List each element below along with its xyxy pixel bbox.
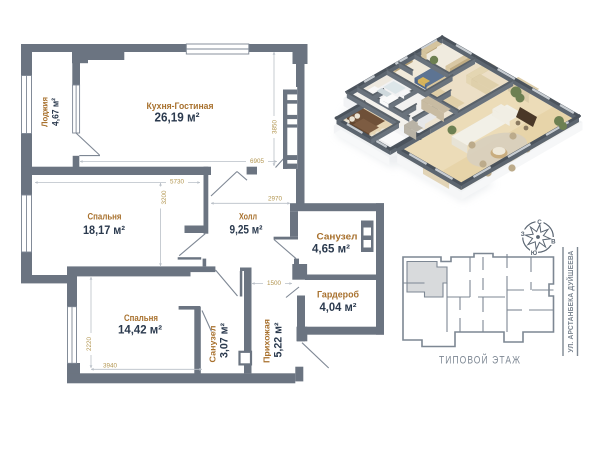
svg-text:5,22 м²: 5,22 м² — [272, 322, 284, 357]
svg-text:Ю: Ю — [531, 250, 538, 257]
svg-text:4,67 м²: 4,67 м² — [51, 98, 62, 126]
svg-text:З: З — [521, 231, 525, 238]
svg-text:14,42 м²: 14,42 м² — [118, 323, 162, 337]
svg-text:6905: 6905 — [250, 158, 265, 165]
svg-text:Санузел: Санузел — [208, 326, 218, 363]
svg-text:2220: 2220 — [86, 337, 93, 352]
svg-text:18,17 м²: 18,17 м² — [83, 223, 125, 237]
svg-text:Прихожая: Прихожая — [262, 319, 272, 363]
svg-text:3200: 3200 — [161, 190, 168, 205]
svg-text:ТИПОВОЙ ЭТАЖ: ТИПОВОЙ ЭТАЖ — [439, 354, 521, 367]
svg-text:1500: 1500 — [267, 280, 282, 287]
svg-text:УЛ. АРСТАНБЕКА ДУЙШЕЕВА: УЛ. АРСТАНБЕКА ДУЙШЕЕВА — [566, 250, 575, 352]
svg-text:5730: 5730 — [170, 178, 185, 185]
svg-text:В: В — [551, 238, 556, 245]
svg-text:Холл: Холл — [239, 212, 257, 223]
svg-text:С: С — [537, 219, 542, 226]
svg-text:Санузел: Санузел — [317, 232, 358, 242]
svg-text:3850: 3850 — [272, 120, 279, 135]
svg-text:3940: 3940 — [103, 362, 118, 369]
svg-text:Лоджия: Лоджия — [40, 97, 50, 127]
svg-text:2970: 2970 — [268, 195, 283, 202]
svg-text:9,25 м²: 9,25 м² — [230, 223, 263, 237]
svg-text:Спальня: Спальня — [88, 211, 122, 222]
svg-text:4,04 м²: 4,04 м² — [320, 301, 357, 314]
svg-text:26,19 м²: 26,19 м² — [155, 110, 200, 125]
svg-text:4,65 м²: 4,65 м² — [312, 243, 350, 256]
svg-text:Гардероб: Гардероб — [317, 290, 359, 300]
svg-text:3,07 м²: 3,07 м² — [219, 323, 231, 358]
